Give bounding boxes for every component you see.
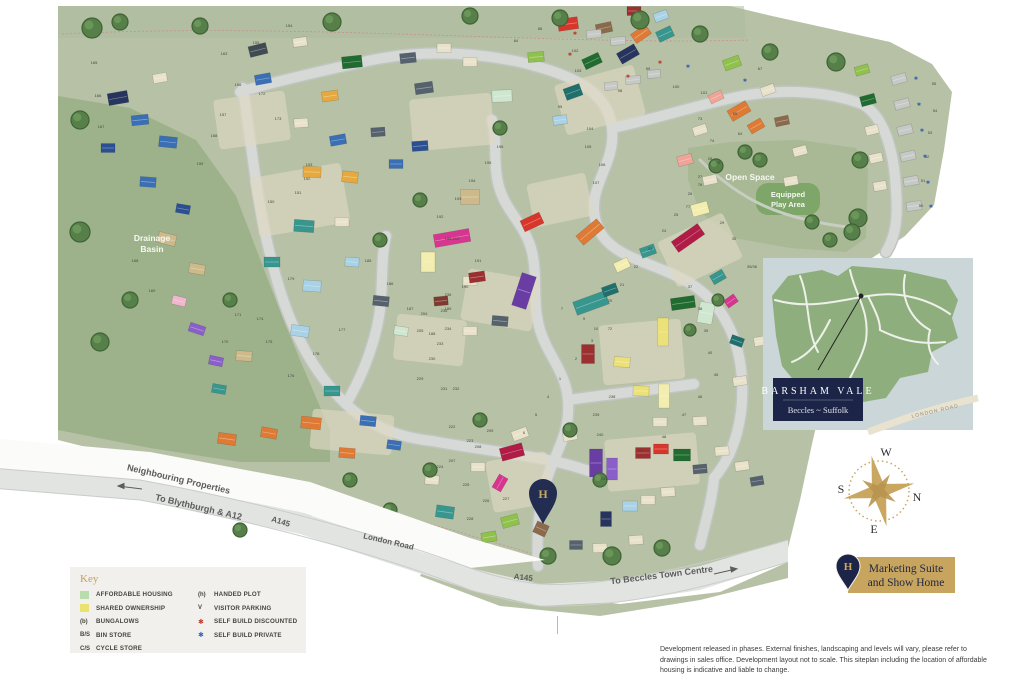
- svg-text:26: 26: [688, 191, 693, 196]
- svg-text:157: 157: [220, 112, 227, 117]
- svg-text:101: 101: [701, 90, 708, 95]
- key-code: (h): [198, 592, 214, 598]
- svg-text:226: 226: [483, 498, 490, 503]
- svg-text:235: 235: [441, 308, 448, 313]
- inset-title: BARSHAM VALE: [761, 386, 874, 397]
- svg-text:166: 166: [95, 93, 102, 98]
- svg-text:185: 185: [365, 258, 372, 263]
- svg-text:74: 74: [710, 138, 715, 143]
- svg-text:22: 22: [634, 264, 639, 269]
- svg-text:222: 222: [449, 424, 456, 429]
- map-key: Key AFFORDABLE HOUSINGSHARED OWNERSHIP(b…: [70, 567, 306, 653]
- compass-n: N: [913, 490, 922, 504]
- key-row: C/SCYCLE STORE: [80, 642, 198, 656]
- svg-text:229: 229: [417, 376, 424, 381]
- svg-text:156: 156: [235, 82, 242, 87]
- svg-text:152: 152: [304, 176, 311, 181]
- marketing-badge-line2: and Show Home: [868, 577, 945, 589]
- svg-text:209: 209: [487, 428, 494, 433]
- svg-text:172: 172: [259, 91, 266, 96]
- svg-text:187: 187: [407, 306, 414, 311]
- svg-text:159: 159: [197, 161, 204, 166]
- svg-text:239: 239: [593, 412, 600, 417]
- svg-text:154: 154: [286, 23, 293, 28]
- svg-text:204: 204: [421, 311, 428, 316]
- key-row: SHARED OWNERSHIP: [80, 602, 198, 616]
- locator-inset: LONDON ROAD BARSHAM VALE Beccles ~ Suffo…: [761, 258, 978, 432]
- disclaimer-line-2: drawings in sales office. Development la…: [660, 657, 987, 664]
- svg-text:175: 175: [266, 339, 273, 344]
- svg-text:49: 49: [638, 448, 643, 453]
- svg-text:165: 165: [91, 60, 98, 65]
- key-column-2: (h)HANDED PLOTVVISITOR PARKING✱SELF BUIL…: [198, 588, 306, 656]
- key-column-1: AFFORDABLE HOUSINGSHARED OWNERSHIP(b)BUN…: [70, 588, 198, 656]
- svg-text:100: 100: [673, 84, 680, 89]
- svg-text:47: 47: [682, 412, 687, 417]
- svg-text:150: 150: [268, 199, 275, 204]
- svg-text:194: 194: [469, 178, 476, 183]
- svg-text:10: 10: [594, 326, 599, 331]
- disclaimer-line-3: housing is indicative and liable to chan…: [660, 667, 789, 674]
- svg-text:25: 25: [674, 212, 679, 217]
- svg-text:H: H: [538, 487, 548, 501]
- key-code: C/S: [80, 646, 96, 652]
- play-area-label-2: Play Area: [771, 200, 806, 209]
- svg-text:234: 234: [445, 326, 452, 331]
- svg-text:230: 230: [429, 356, 436, 361]
- svg-text:170: 170: [222, 339, 229, 344]
- key-row: ✱SELF BUILD DISCOUNTED: [198, 615, 306, 629]
- svg-text:67: 67: [758, 66, 763, 71]
- compass-rose: W S N E: [836, 445, 921, 536]
- svg-text:99: 99: [646, 66, 651, 71]
- key-row: VVISITOR PARKING: [198, 602, 306, 616]
- key-code: V: [198, 605, 214, 611]
- disclaimer-text: Development released in phases. External…: [660, 645, 1012, 677]
- svg-text:195: 195: [485, 160, 492, 165]
- svg-text:151: 151: [295, 190, 302, 195]
- svg-text:228: 228: [467, 516, 474, 521]
- key-row: ✱SELF BUILD PRIVATE: [198, 629, 306, 643]
- drainage-basin-label-1: Drainage: [134, 233, 171, 243]
- key-code: B/S: [80, 632, 96, 638]
- svg-text:29: 29: [720, 220, 725, 225]
- svg-text:176: 176: [288, 373, 295, 378]
- svg-text:54: 54: [933, 108, 938, 113]
- key-label: BIN STORE: [96, 632, 131, 639]
- compass-w: W: [880, 445, 892, 459]
- svg-text:37: 37: [688, 284, 693, 289]
- key-row: AFFORDABLE HOUSING: [80, 588, 198, 602]
- key-label: HANDED PLOT: [214, 591, 261, 598]
- svg-text:55: 55: [932, 81, 937, 86]
- siteplan-page: { "map": { "labels": { "drainage_line1":…: [0, 0, 1024, 683]
- svg-text:178: 178: [313, 351, 320, 356]
- svg-text:72: 72: [608, 326, 613, 331]
- svg-text:30: 30: [732, 236, 737, 241]
- svg-text:21: 21: [620, 282, 625, 287]
- svg-text:231: 231: [441, 386, 448, 391]
- marketing-suite-badge: Marketing Suite and Show Home H: [836, 554, 955, 593]
- open-space-label: Open Space: [725, 172, 774, 182]
- svg-text:73: 73: [698, 116, 703, 121]
- svg-text:167: 167: [98, 124, 105, 129]
- svg-text:225: 225: [463, 482, 470, 487]
- key-label: SELF BUILD PRIVATE: [214, 632, 282, 639]
- svg-text:233: 233: [437, 341, 444, 346]
- svg-text:190: 190: [462, 284, 469, 289]
- svg-text:193: 193: [455, 196, 462, 201]
- svg-text:104: 104: [587, 126, 594, 131]
- svg-text:102: 102: [572, 48, 579, 53]
- play-area-label-1: Equipped: [771, 190, 806, 199]
- key-row: (b)BUNGALOWS: [80, 615, 198, 629]
- svg-text:40: 40: [708, 350, 713, 355]
- svg-text:196: 196: [497, 144, 504, 149]
- svg-text:168: 168: [132, 258, 139, 263]
- svg-text:85: 85: [538, 26, 543, 31]
- svg-text:238: 238: [609, 394, 616, 399]
- svg-text:153: 153: [306, 162, 313, 167]
- key-label: VISITOR PARKING: [214, 605, 271, 612]
- svg-text:224: 224: [437, 464, 444, 469]
- key-label: AFFORDABLE HOUSING: [96, 591, 173, 598]
- key-row: B/SBIN STORE: [80, 629, 198, 643]
- svg-text:188: 188: [429, 331, 436, 336]
- svg-text:179: 179: [288, 276, 295, 281]
- svg-text:191: 191: [475, 258, 482, 263]
- compass-s: S: [838, 482, 845, 496]
- compass-e: E: [870, 522, 877, 536]
- svg-text:223: 223: [467, 438, 474, 443]
- svg-text:236: 236: [445, 292, 452, 297]
- key-row: (h)HANDED PLOT: [198, 588, 306, 602]
- drainage-basin-label-2: Basin: [140, 244, 163, 254]
- svg-text:103: 103: [575, 68, 582, 73]
- svg-text:84: 84: [514, 38, 519, 43]
- stray-fold-mark: [557, 616, 558, 634]
- svg-text:24: 24: [662, 228, 667, 233]
- svg-text:27: 27: [698, 174, 703, 179]
- svg-text:163: 163: [221, 51, 228, 56]
- svg-text:H: H: [844, 561, 853, 573]
- key-swatch: [80, 604, 89, 612]
- svg-text:155: 155: [253, 40, 260, 45]
- svg-text:158: 158: [211, 133, 218, 138]
- svg-text:48: 48: [662, 434, 667, 439]
- svg-text:28: 28: [708, 156, 713, 161]
- play-area: [756, 183, 820, 215]
- key-label: BUNGALOWS: [96, 618, 139, 625]
- svg-text:98: 98: [618, 88, 623, 93]
- svg-text:198-203: 198-203: [445, 236, 460, 241]
- svg-text:20: 20: [608, 298, 613, 303]
- red-asterisk: ✱: [198, 618, 214, 626]
- svg-text:192: 192: [437, 214, 444, 219]
- svg-text:105: 105: [585, 144, 592, 149]
- svg-text:38: 38: [698, 306, 703, 311]
- svg-text:46: 46: [698, 394, 703, 399]
- svg-text:207: 207: [449, 458, 456, 463]
- inset-subtitle: Beccles ~ Suffolk: [788, 405, 849, 415]
- svg-text:241: 241: [601, 476, 608, 481]
- key-label: SELF BUILD DISCOUNTED: [214, 618, 297, 625]
- svg-text:35/36: 35/36: [747, 264, 758, 269]
- svg-text:169: 169: [149, 288, 156, 293]
- svg-text:53: 53: [928, 130, 933, 135]
- key-title: Key: [80, 573, 306, 585]
- svg-text:174: 174: [257, 316, 264, 321]
- svg-text:171: 171: [235, 312, 242, 317]
- svg-text:65: 65: [733, 111, 738, 116]
- key-label: CYCLE STORE: [96, 645, 142, 652]
- svg-text:173: 173: [275, 116, 282, 121]
- svg-text:75: 75: [716, 160, 721, 165]
- svg-text:95: 95: [558, 104, 563, 109]
- svg-text:45: 45: [714, 372, 719, 377]
- disclaimer-line-1: Development released in phases. External…: [660, 646, 967, 653]
- svg-text:205: 205: [417, 328, 424, 333]
- svg-text:77: 77: [686, 204, 691, 209]
- svg-text:23: 23: [648, 246, 653, 251]
- key-swatch: [80, 591, 89, 599]
- svg-text:107: 107: [593, 180, 600, 185]
- key-label: SHARED OWNERSHIP: [96, 605, 165, 612]
- marketing-badge-line1: Marketing Suite: [869, 563, 943, 575]
- svg-text:177: 177: [339, 327, 346, 332]
- inset-pointer-dot: [859, 294, 864, 299]
- svg-text:227: 227: [503, 496, 510, 501]
- key-code: (b): [80, 619, 96, 625]
- svg-text:208: 208: [475, 444, 482, 449]
- svg-text:232: 232: [453, 386, 460, 391]
- svg-text:39: 39: [704, 328, 709, 333]
- svg-text:76: 76: [698, 182, 703, 187]
- svg-text:186: 186: [387, 281, 394, 286]
- blue-asterisk: ✱: [198, 631, 214, 639]
- svg-text:106: 106: [599, 162, 606, 167]
- svg-text:240: 240: [597, 432, 604, 437]
- svg-text:50: 50: [919, 203, 924, 208]
- svg-text:64: 64: [738, 131, 743, 136]
